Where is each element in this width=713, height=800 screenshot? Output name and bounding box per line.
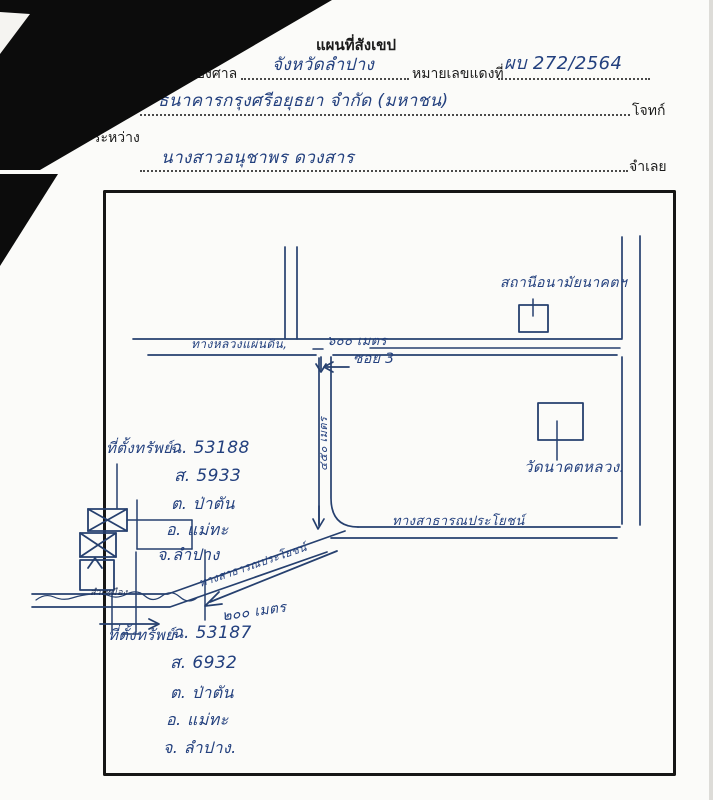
property-marker-box-3 [80,558,114,590]
property-1-deed: ฉ. 53188 [170,440,250,458]
property-marker-box-1 [88,509,127,531]
arrow-soi3-pointer [324,362,349,372]
property-2-province: จ. ลำปาง. [163,740,237,757]
health-station-label: สถานีอนามัยนาคตฯ [500,276,627,291]
soi-3-label: ซอย 3 [353,352,394,367]
property-2-deed: ฉ. 53187 [172,625,252,643]
property-2-amphoe: อ. แม่ทะ [166,712,229,729]
arrow-soi-top [316,357,326,372]
property-1-province: จ.ลำปาง [157,547,220,564]
road-highway-label: ทางหลวงแผ่นดิน, [191,338,287,351]
scan-edge-shade [709,0,713,800]
canal-label: ลำเหมือง [90,589,128,598]
property-1-label: ที่ตั้งทรัพย์ [106,441,172,457]
property-2-tambon: ต. ป่าตัน [170,685,234,702]
property-1-tambon: ต. ป่าตัน [171,496,235,513]
temple-label: วัดนาคตหลวง. [524,460,625,476]
property-1-survey: ส. 5933 [174,468,241,486]
property-1-amphoe: อ. แม่ทะ [166,522,229,539]
distance-450-label: ๔๕๐ เมตร [318,412,330,476]
property-marker-box-2 [80,533,116,557]
road-top-vertical [285,247,297,339]
property-2-label: ที่ตั้งทรัพย์ [108,628,174,644]
temple-box [538,403,583,440]
sketch-map-drawing [0,0,713,800]
scanned-document-page: แผนที่สังเขป คดี แพ่ง ของศาล จังหวัดลำปา… [0,0,713,800]
public-road-label: ทางสาธารณประโยชน์ [392,515,525,529]
distance-600-label: ๖๐๐ เมตร [327,335,387,349]
property-2-survey: ส. 6932 [170,655,237,673]
